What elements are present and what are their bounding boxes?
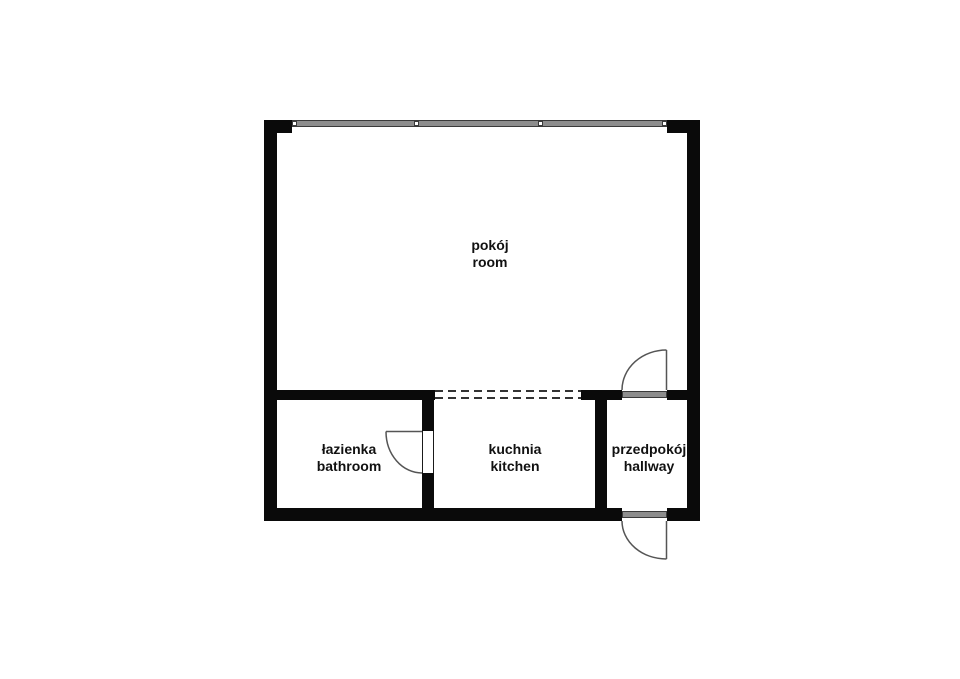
room-label-przedpokoj-en: hallway <box>549 458 749 475</box>
floorplan-canvas: pokój room łazienka bathroom kuchnia kit… <box>0 0 960 679</box>
door-symbols <box>0 0 960 679</box>
room-label-pokoj: pokój room <box>390 237 590 271</box>
room-label-pokoj-pl: pokój <box>390 237 590 254</box>
room-label-pokoj-en: room <box>390 254 590 271</box>
hallway-room-door-arc <box>622 350 667 390</box>
entrance-door-arc <box>622 521 667 559</box>
room-label-przedpokoj-pl: przedpokój <box>549 441 749 458</box>
room-label-przedpokoj: przedpokój hallway <box>549 441 749 475</box>
